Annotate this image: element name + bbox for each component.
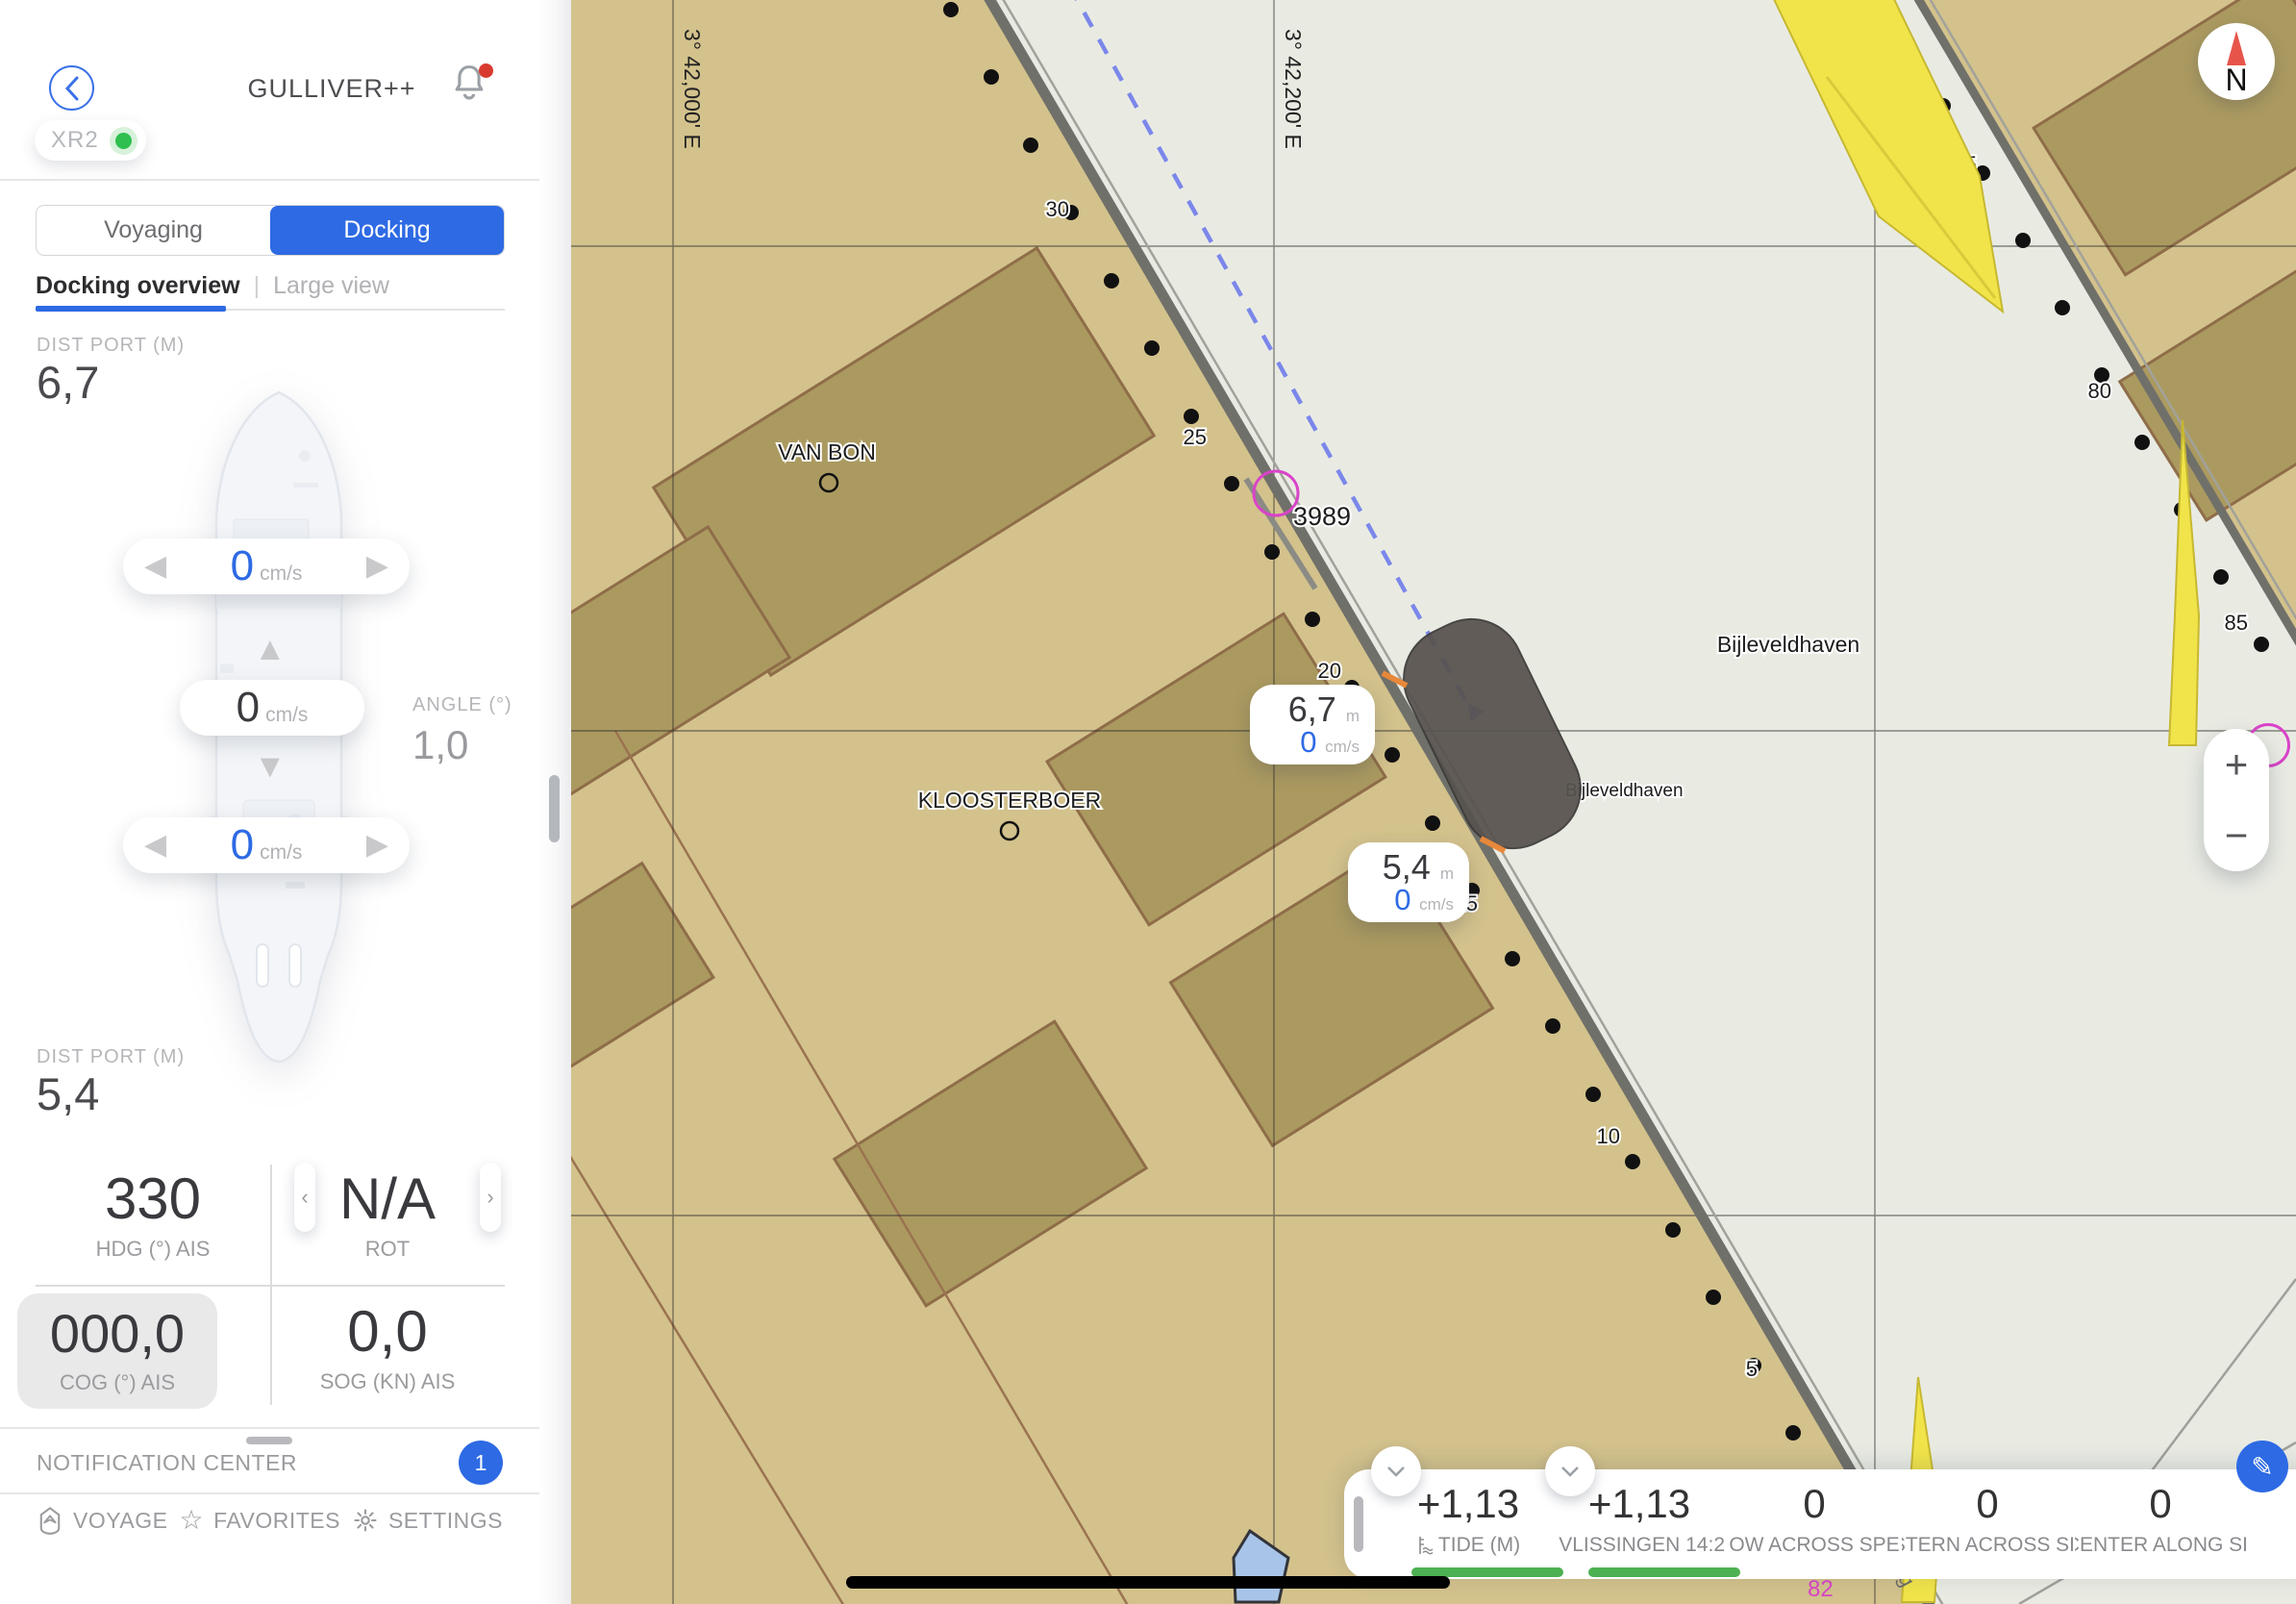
app-screen: 3° 42,000' E 3° 42,200' E (0, 0, 2296, 1604)
decrease-along-speed-button[interactable]: ▼ (254, 748, 287, 786)
along-speed-value: 0 cm/s (237, 684, 309, 732)
dist-port-top-value: 6,7 (37, 356, 99, 409)
angle-value: 1,0 (412, 722, 512, 768)
sidebar-bottom-nav: VOYAGE ☆ FAVORITES SETTINGS (0, 1506, 539, 1535)
bow-speed-control: ◀ 0 cm/s ▶ (123, 539, 410, 594)
dist-port-top-label: DIST PORT (M) (37, 335, 185, 357)
nav-voyage-label: VOYAGE (73, 1508, 167, 1534)
tide-label: TIDE (M) (1438, 1534, 1520, 1557)
misc-number-label: 82 (1808, 1576, 1834, 1602)
stern-across-value: 0 (1902, 1483, 2073, 1525)
divider (0, 179, 539, 181)
bow-across-cell[interactable]: 0 BOW ACROSS SPEE (1729, 1483, 1900, 1557)
chevron-down-icon (1562, 1467, 1578, 1475)
zoom-in-button[interactable]: + (2204, 729, 2269, 800)
sidebar-resize-handle[interactable] (549, 775, 560, 842)
svg-text:80: 80 (2088, 379, 2111, 403)
svg-text:Bijleveldhaven: Bijleveldhaven (1565, 781, 1684, 801)
increase-bow-speed-button[interactable]: ▶ (366, 552, 388, 581)
svg-text:25: 25 (1184, 425, 1207, 449)
bow-distance-value: 6,7 m (1260, 692, 1360, 727)
nav-settings-label: SETTINGS (388, 1508, 503, 1534)
compass-north-button[interactable]: N (2198, 23, 2275, 100)
station-value: +1,13 (1554, 1483, 1725, 1525)
bell-alert-dot (479, 63, 493, 78)
notification-count-badge: 1 (459, 1441, 503, 1485)
pencil-icon: ✎ (2251, 1451, 2273, 1483)
nav-voyage[interactable]: VOYAGE (37, 1506, 167, 1535)
angle-label: ANGLE (°) (412, 694, 512, 716)
tab-voyaging[interactable]: Voyaging (37, 206, 270, 255)
divider (0, 1492, 539, 1494)
svg-text:85: 85 (2225, 611, 2248, 635)
nav-favorites[interactable]: ☆ FAVORITES (179, 1506, 340, 1535)
sog-stat: 0,0SOG (KN) AIS (270, 1301, 505, 1394)
chevron-down-icon (1388, 1467, 1404, 1475)
bow-speed-value: 0 cm/s (1260, 727, 1360, 759)
svg-text:Bijleveldhaven: Bijleveldhaven (1717, 632, 1859, 657)
subtab-large-view[interactable]: Large view (273, 272, 389, 299)
subtab-separator: | (254, 272, 261, 299)
angle-block: ANGLE (°) 1,0 (412, 694, 512, 768)
increase-stern-speed-button[interactable]: ▶ (366, 831, 388, 860)
tide-gauge-icon (1416, 1536, 1434, 1555)
subtab-active-indicator (36, 306, 226, 312)
docking-subtabs: Docking overview|Large view (36, 272, 389, 300)
online-status-icon (110, 127, 137, 155)
sidebar-panel: GULLIVER++ XR2 Voyaging Docking Docking … (0, 0, 539, 1604)
station-cell[interactable]: +1,13 VLISSINGEN 14:2 (1554, 1483, 1725, 1557)
subtab-docking-overview[interactable]: Docking overview (36, 272, 240, 299)
center-along-value: 0 (2075, 1483, 2246, 1525)
notifications-bell-button[interactable] (448, 62, 494, 108)
svg-text:20: 20 (1318, 659, 1341, 683)
bow-across-label: BOW ACROSS SPEE (1729, 1534, 1900, 1557)
increase-along-speed-button[interactable]: ▲ (254, 631, 287, 668)
divider (0, 1427, 539, 1429)
tab-docking[interactable]: Docking (270, 206, 504, 255)
panel-drag-handle[interactable] (1354, 1496, 1363, 1552)
tide-value: +1,13 (1383, 1483, 1554, 1525)
svg-text:VAN BON: VAN BON (778, 439, 876, 464)
nav-settings[interactable]: SETTINGS (352, 1506, 503, 1535)
divider (36, 1285, 505, 1287)
dist-port-bottom-value: 5,4 (37, 1067, 99, 1120)
dist-port-bottom-label: DIST PORT (M) (37, 1046, 185, 1068)
center-along-label: CENTER ALONG SP (2075, 1534, 2246, 1557)
telemetry-bottom-panel: +1,13 TIDE (M) +1,13 (1344, 1469, 2296, 1579)
status-pill-label: XR2 (51, 127, 99, 154)
edit-metrics-button[interactable]: ✎ (2236, 1441, 2288, 1492)
cog-stat: 000,0COG (°) AIS (17, 1306, 217, 1395)
longitude-label-left: 3° 42,000' E (680, 29, 705, 149)
home-indicator[interactable] (846, 1576, 1450, 1589)
voyage-icon (37, 1506, 63, 1535)
nav-favorites-label: FAVORITES (213, 1508, 340, 1534)
svg-text:30: 30 (1046, 197, 1069, 221)
stern-distance-value: 5,4 m (1358, 850, 1454, 885)
along-speed-control: 0 cm/s (180, 680, 364, 736)
zoom-out-button[interactable]: − (2204, 800, 2269, 871)
svg-text:KLOOSTERBOER: KLOOSTERBOER (918, 788, 1101, 813)
compass-needle-icon (2227, 31, 2246, 65)
notification-center-label[interactable]: NOTIFICATION CENTER (37, 1450, 297, 1476)
bow-across-value: 0 (1729, 1483, 1900, 1525)
stern-across-label: STERN ACROSS SP (1902, 1534, 2073, 1557)
center-along-cell[interactable]: 0 CENTER ALONG SP (2075, 1483, 2246, 1557)
stern-speed-value: 0 cm/s (231, 821, 303, 869)
connection-status-pill[interactable]: XR2 (35, 120, 146, 161)
decrease-bow-speed-button[interactable]: ◀ (144, 552, 166, 581)
bow-speed-value: 0 cm/s (231, 542, 303, 590)
rot-prev-button[interactable]: ‹ (294, 1163, 315, 1232)
station-label: VLISSINGEN 14:2 (1559, 1534, 1725, 1557)
stern-across-cell[interactable]: 0 STERN ACROSS SP (1902, 1483, 2073, 1557)
hdg-stat: 330HDG (°) AIS (36, 1168, 270, 1262)
stern-speed-value: 0 cm/s (1358, 885, 1454, 916)
mode-segmented-control: Voyaging Docking (36, 205, 505, 256)
bow-distance-tooltip: 6,7 m 0 cm/s (1250, 685, 1375, 764)
compass-n-label: N (2225, 63, 2247, 97)
notification-drag-handle[interactable] (246, 1437, 292, 1444)
rot-next-button[interactable]: › (480, 1163, 501, 1232)
star-icon: ☆ (179, 1507, 204, 1534)
stern-speed-control: ◀ 0 cm/s ▶ (123, 817, 410, 873)
decrease-stern-speed-button[interactable]: ◀ (144, 831, 166, 860)
stern-distance-tooltip: 5,4 m 0 cm/s (1348, 842, 1469, 922)
sidebar-map-divider (539, 0, 571, 1604)
longitude-label-right: 3° 42,200' E (1281, 29, 1306, 149)
tide-cell[interactable]: +1,13 TIDE (M) (1383, 1483, 1554, 1557)
map-zoom-control: + − (2204, 729, 2269, 871)
gear-icon (352, 1507, 379, 1534)
back-button[interactable] (49, 65, 94, 111)
station-active-bar (1588, 1567, 1740, 1577)
chart-number-label: 3989 (1293, 502, 1351, 531)
svg-text:10: 10 (1597, 1124, 1620, 1148)
svg-text:5: 5 (1746, 1357, 1758, 1381)
chevron-left-icon (67, 78, 77, 99)
